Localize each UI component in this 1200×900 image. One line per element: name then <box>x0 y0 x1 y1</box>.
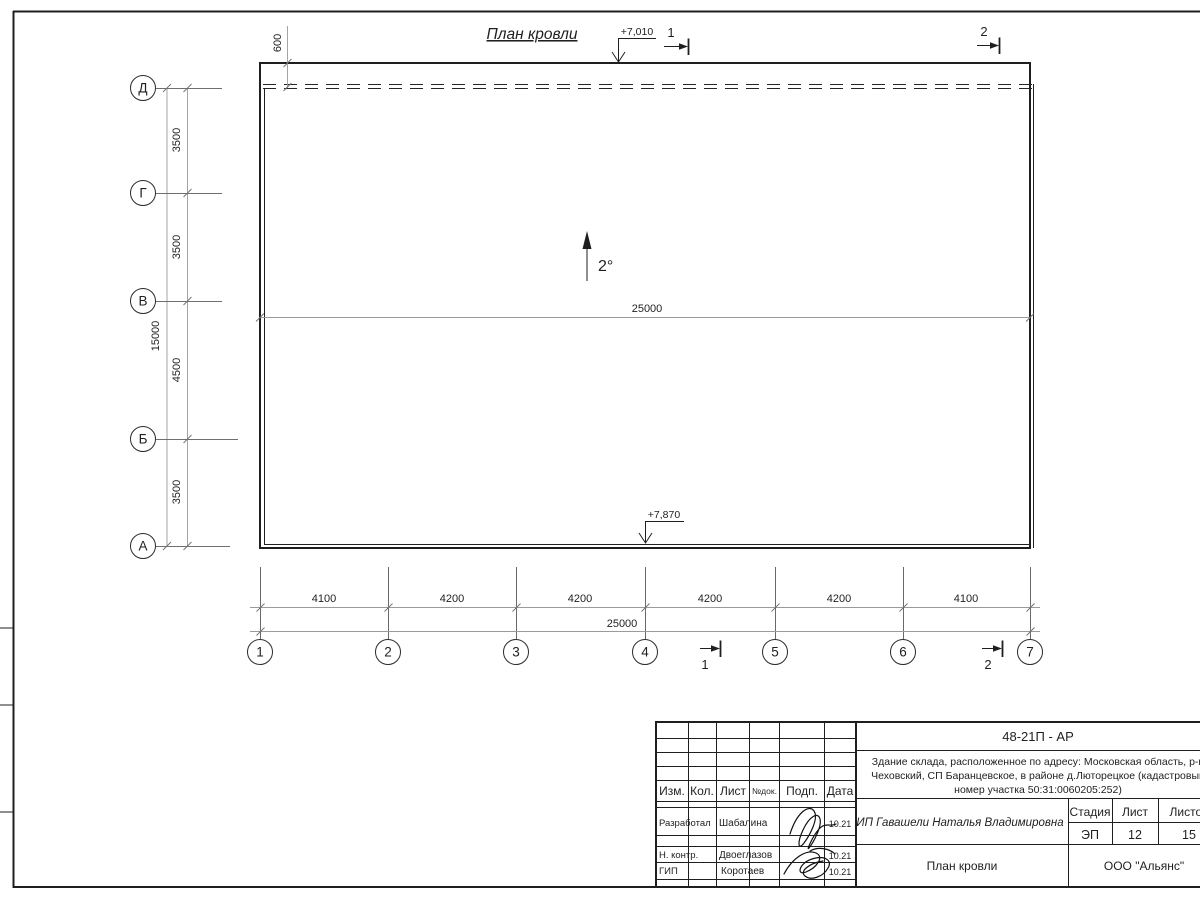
col-izm: Изм. <box>659 784 685 798</box>
drawing-title: План кровли <box>487 26 578 43</box>
row-gip-date: 10.21 <box>829 867 852 877</box>
axis-label-v: В <box>138 294 147 309</box>
col-data: Дата <box>827 784 854 798</box>
elevation-top-label: +7,010 <box>621 26 654 38</box>
section-mark-1-bottom: 1 <box>700 641 721 673</box>
left-total-dim: 15000 <box>150 321 162 352</box>
project-description-line2: Чеховский, СП Баранцевское, в районе д.Л… <box>871 770 1200 782</box>
elevation-mark-top: +7,010 <box>612 26 656 62</box>
roof-plan-sheet: План кровли 25000 2° +7,010 +7,870 <box>0 0 1200 900</box>
sheets-header: Листов <box>1170 805 1200 819</box>
section-mark-2-top: 2 <box>977 24 1000 54</box>
left-dim-0: 3500 <box>171 128 183 152</box>
client-name: ИП Гавашели Наталья Владимировна <box>856 817 1063 829</box>
axis-label-2: 2 <box>384 645 392 660</box>
axis-label-b: Б <box>139 432 148 447</box>
left-dim-1: 3500 <box>171 235 183 259</box>
bottom-dim-0: 4100 <box>312 593 336 605</box>
axis-label-7: 7 <box>1026 645 1034 660</box>
project-description-line3: номер участка 50:31:0060205:252) <box>954 784 1122 796</box>
sheet-header: Лист <box>1122 805 1149 819</box>
elevation-bottom-label: +7,870 <box>648 509 681 521</box>
row-developer-date: 10.21 <box>829 819 852 829</box>
col-kol: Кол. <box>690 784 714 798</box>
row-developer-role: Разработал <box>659 818 711 829</box>
sheet-value: 12 <box>1128 828 1142 842</box>
axis-label-6: 6 <box>899 645 907 660</box>
row-ncontrol-name: Двоеглазов <box>719 850 772 861</box>
axis-label-d: Д <box>138 81 147 96</box>
overhang-dimension: 600 <box>272 26 292 91</box>
left-dim-3: 3500 <box>171 480 183 504</box>
signature-ncontrol-gip <box>784 848 835 878</box>
stage-header: Стадия <box>1070 805 1111 819</box>
title-block: Изм. Кол. Лист №док. Подп. Дата Разработ… <box>656 722 1200 887</box>
col-ndok: №док. <box>752 786 777 796</box>
axis-label-3: 3 <box>512 645 520 660</box>
overhang-dim-label: 600 <box>272 34 284 52</box>
section-2-label: 2 <box>980 24 987 39</box>
inner-width-dimension: 25000 <box>256 303 1034 322</box>
bottom-total-dim: 25000 <box>607 618 638 630</box>
elevation-mark-bottom: +7,870 <box>639 509 684 543</box>
bottom-dim-3: 4200 <box>698 593 722 605</box>
bottom-dim-4: 4200 <box>827 593 851 605</box>
bottom-dim-1: 4200 <box>440 593 464 605</box>
axis-label-a: А <box>138 539 147 554</box>
section-mark-2-bottom: 2 <box>982 641 1003 673</box>
slope-arrow: 2° <box>583 231 614 281</box>
section-2-label: 2 <box>984 657 991 672</box>
axis-label-g: Г <box>139 186 147 201</box>
col-podp: Подп. <box>786 784 818 798</box>
row-ncontrol-date: 10.21 <box>829 851 852 861</box>
bottom-axes: 4100 4200 4200 4200 4200 4100 25000 1 2 … <box>248 567 1043 665</box>
row-gip-role: ГИП <box>659 866 678 877</box>
bottom-dim-2: 4200 <box>568 593 592 605</box>
bottom-dim-5: 4100 <box>954 593 978 605</box>
col-list: Лист <box>720 784 747 798</box>
company-name: ООО "Альянс" <box>1104 859 1184 873</box>
section-1-label: 1 <box>701 657 708 672</box>
axis-label-5: 5 <box>771 645 779 660</box>
left-axes: Д Г В Б А 3500 3500 4500 3500 15000 <box>131 76 239 559</box>
inner-width-label: 25000 <box>632 303 663 315</box>
project-description-line1: Здание склада, расположенное по адресу: … <box>872 756 1200 768</box>
section-mark-1-top: 1 <box>664 25 689 55</box>
left-dim-2: 4500 <box>171 358 183 382</box>
sheets-value: 15 <box>1182 828 1196 842</box>
stage-value: ЭП <box>1081 828 1099 842</box>
project-code: 48-21П - АР <box>1002 729 1074 744</box>
row-developer-name: Шабалина <box>719 817 768 829</box>
sheet-title: План кровли <box>927 859 998 873</box>
axis-label-4: 4 <box>641 645 649 660</box>
axis-label-1: 1 <box>256 645 264 660</box>
row-gip-name: Коротаев <box>721 866 764 877</box>
section-1-label: 1 <box>667 25 674 40</box>
row-ncontrol-role: Н. контр. <box>659 850 698 861</box>
slope-label: 2° <box>598 258 613 275</box>
